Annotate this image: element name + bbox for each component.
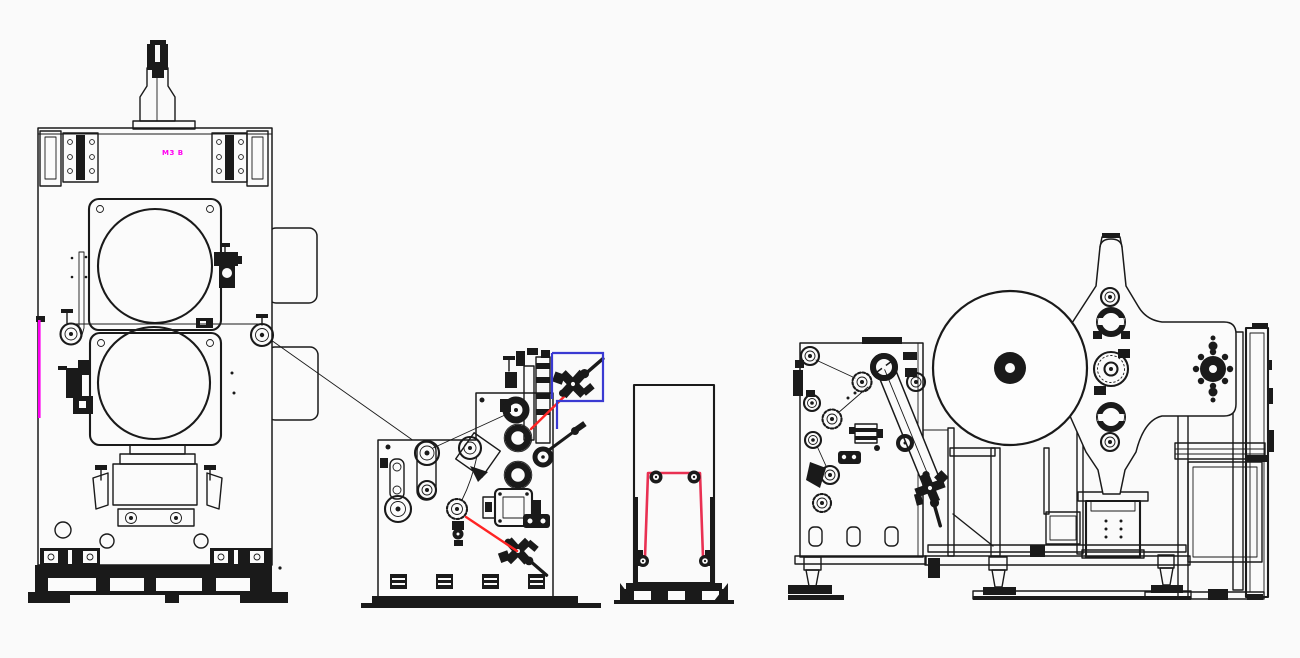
material-roll	[933, 291, 1087, 445]
stand-roller	[699, 555, 711, 567]
stand-roller	[688, 471, 701, 484]
side-protrusion-lower	[267, 347, 318, 420]
web-path-stand	[645, 473, 703, 557]
blade-station-upper	[552, 359, 603, 398]
highlight-callout	[552, 353, 603, 429]
winder-pedestal	[1078, 492, 1148, 558]
turret-winder	[788, 233, 1274, 600]
cad-canvas: M3 B	[0, 0, 1300, 658]
press-machine: M3 B	[28, 40, 318, 603]
machine-line-drawing: M3 B	[0, 0, 1300, 658]
stand-base	[614, 583, 734, 604]
lifting-mast	[133, 40, 195, 129]
winder-center-frame	[923, 424, 1190, 578]
machine-tag-label: M3 B	[162, 149, 184, 157]
stand-roller	[650, 471, 663, 484]
web-stand	[614, 385, 734, 604]
side-protrusion-upper	[268, 228, 317, 303]
press-frame	[38, 128, 272, 565]
magenta-datum-line	[38, 320, 41, 418]
stand-roller	[637, 555, 649, 567]
